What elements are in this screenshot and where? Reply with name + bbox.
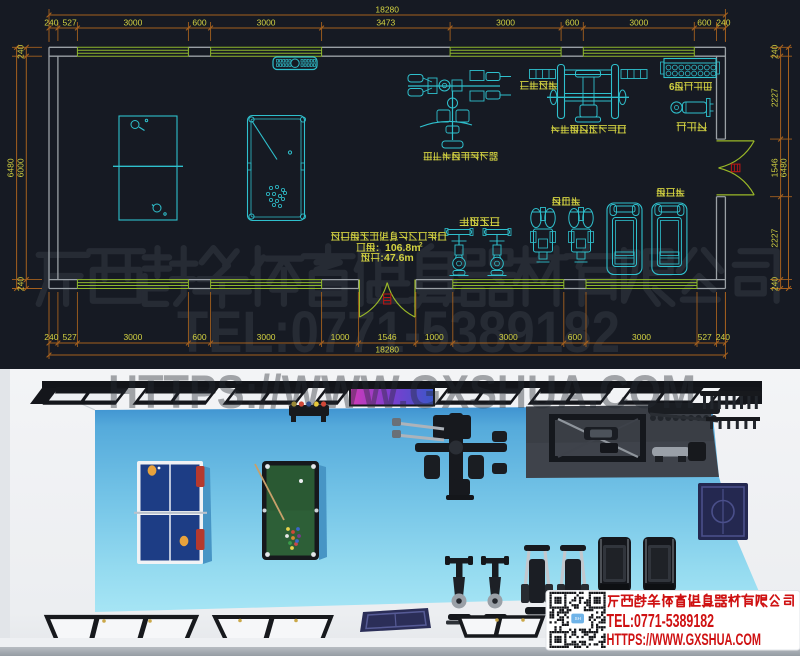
svg-text:240: 240 [716, 332, 730, 342]
svg-text:527: 527 [63, 18, 77, 28]
svg-text:240: 240 [44, 18, 58, 28]
svg-text:3000: 3000 [257, 18, 276, 28]
svg-text:2: 2 [419, 242, 423, 249]
svg-text:6480: 6480 [779, 158, 789, 177]
svg-text:240: 240 [770, 44, 780, 58]
svg-text:SH: SH [575, 616, 581, 621]
svg-text:18280: 18280 [375, 345, 399, 355]
svg-text:600: 600 [697, 18, 711, 28]
svg-text:600: 600 [568, 332, 582, 342]
svg-text:600: 600 [565, 18, 579, 28]
svg-text:600: 600 [192, 332, 206, 342]
svg-text:6480: 6480 [6, 158, 16, 177]
svg-text:6: 6 [669, 82, 675, 93]
svg-text:18280: 18280 [375, 5, 399, 15]
svg-text:240: 240 [770, 277, 780, 291]
svg-text:240: 240 [16, 44, 26, 58]
svg-text:527: 527 [698, 332, 712, 342]
svg-text:1546: 1546 [378, 332, 397, 342]
svg-text:3000: 3000 [499, 332, 518, 342]
svg-text:240: 240 [44, 332, 58, 342]
svg-text:527: 527 [63, 332, 77, 342]
svg-text:2227: 2227 [770, 88, 780, 107]
svg-text:240: 240 [716, 18, 730, 28]
svg-text:HTTPS://WWW.GXSHUA.COM: HTTPS://WWW.GXSHUA.COM [607, 630, 762, 649]
svg-text:1000: 1000 [425, 332, 444, 342]
svg-text:1000: 1000 [331, 332, 350, 342]
svg-text:47.6m: 47.6m [384, 252, 414, 264]
svg-text:3000: 3000 [123, 18, 142, 28]
svg-text:3000: 3000 [257, 332, 276, 342]
svg-text:3000: 3000 [123, 332, 142, 342]
svg-text::: : [376, 243, 379, 254]
svg-text:3000: 3000 [632, 332, 651, 342]
svg-text:2227: 2227 [770, 228, 780, 247]
svg-text:6000: 6000 [16, 158, 26, 177]
svg-text:TEL:0771-5389182: TEL:0771-5389182 [607, 611, 715, 631]
svg-text:HTTPS://WWW.GXSHUA.COM: HTTPS://WWW.GXSHUA.COM [108, 369, 696, 418]
svg-text:3000: 3000 [496, 18, 515, 28]
svg-text:600: 600 [192, 18, 206, 28]
svg-text:3473: 3473 [376, 18, 395, 28]
svg-text:3000: 3000 [629, 18, 648, 28]
svg-text:240: 240 [16, 277, 26, 291]
